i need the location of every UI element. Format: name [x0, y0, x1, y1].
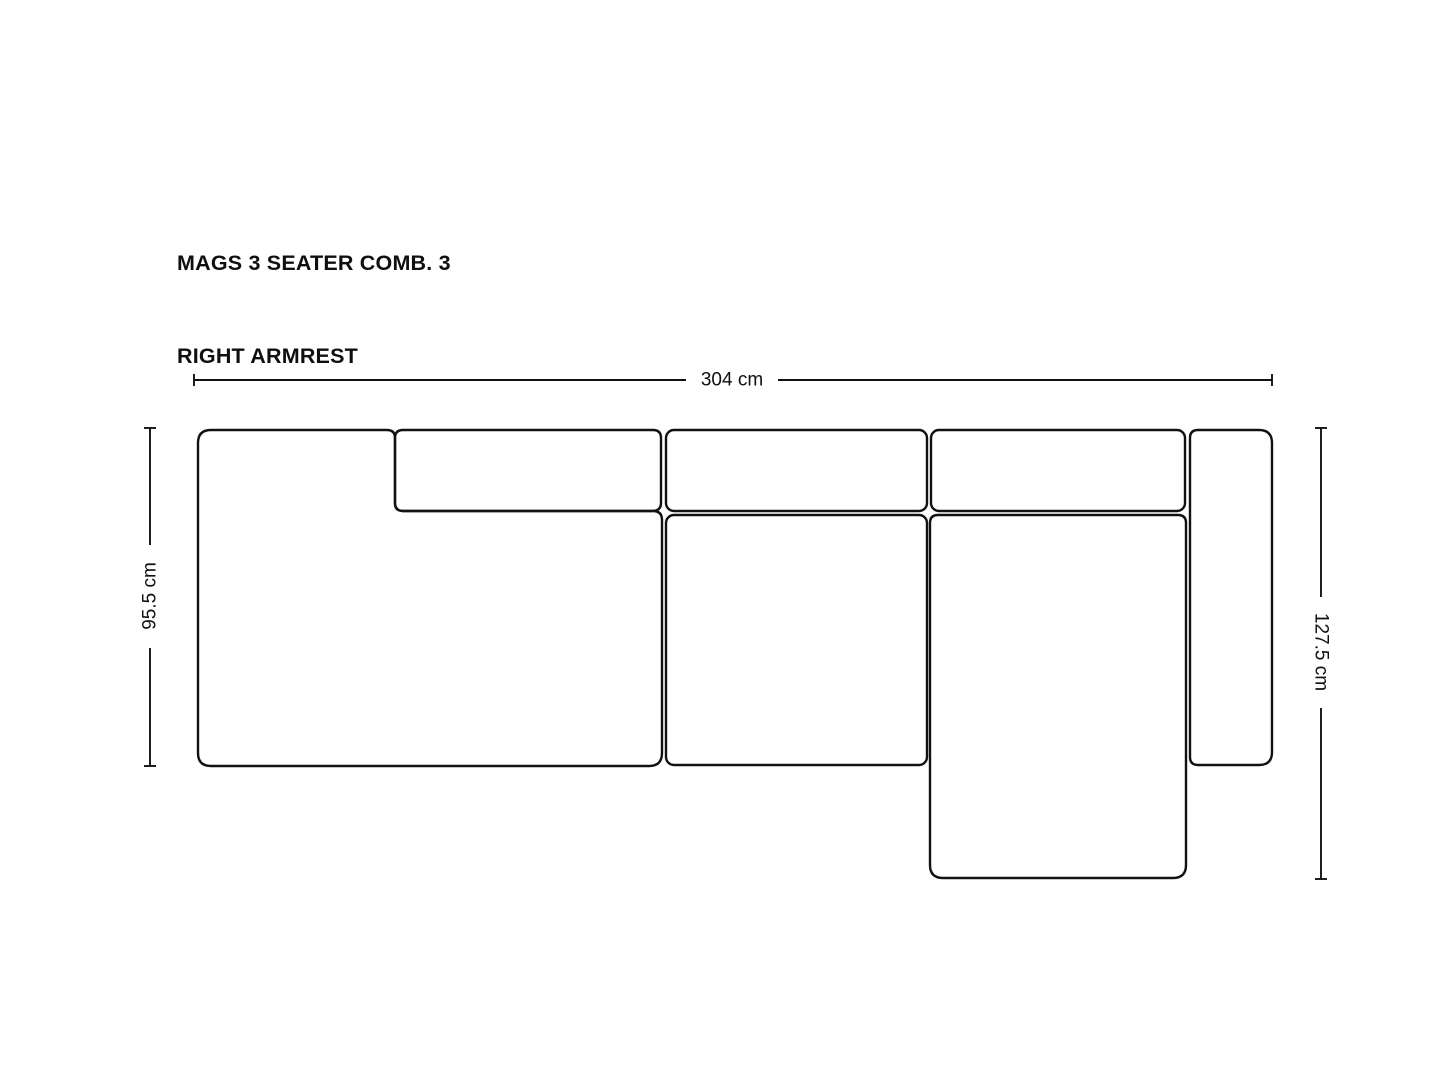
sofa-dimension-diagram: 304 cm 95.5 cm 127.5 cm	[0, 0, 1445, 1087]
sofa-middle-backrest-cushion	[666, 430, 927, 511]
sofa-left-backrest-cushion	[395, 430, 661, 511]
sofa-chaise-seat-cushion	[930, 515, 1186, 878]
sofa-middle-seat-cushion	[666, 515, 927, 765]
overall-width-label: 304 cm	[701, 370, 763, 391]
left-depth-label: 95.5 cm	[140, 562, 161, 630]
right-depth-label: 127.5 cm	[1311, 613, 1332, 691]
sofa-right-armrest	[1190, 430, 1272, 765]
sofa-chaise-backrest-cushion	[931, 430, 1185, 511]
sofa-left-lounge-module	[198, 430, 662, 766]
page-background: MAGS 3 SEATER COMB. 3 RIGHT ARMREST	[0, 0, 1445, 1087]
